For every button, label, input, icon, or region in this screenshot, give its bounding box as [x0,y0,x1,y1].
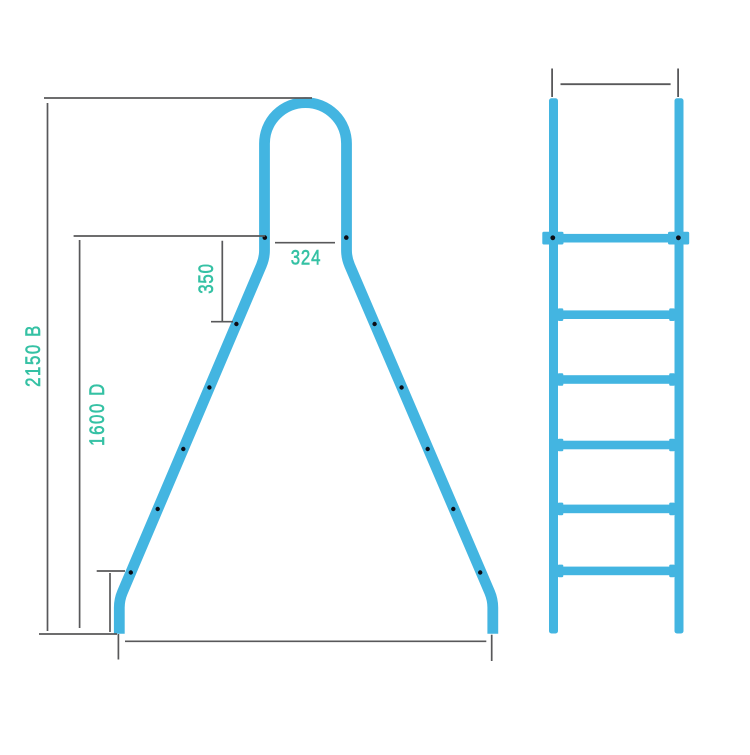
svg-text:350: 350 [195,263,218,293]
svg-text:324: 324 [291,247,321,270]
svg-text:1600 D: 1600 D [86,382,109,446]
svg-text:2150 B: 2150 B [22,324,45,387]
